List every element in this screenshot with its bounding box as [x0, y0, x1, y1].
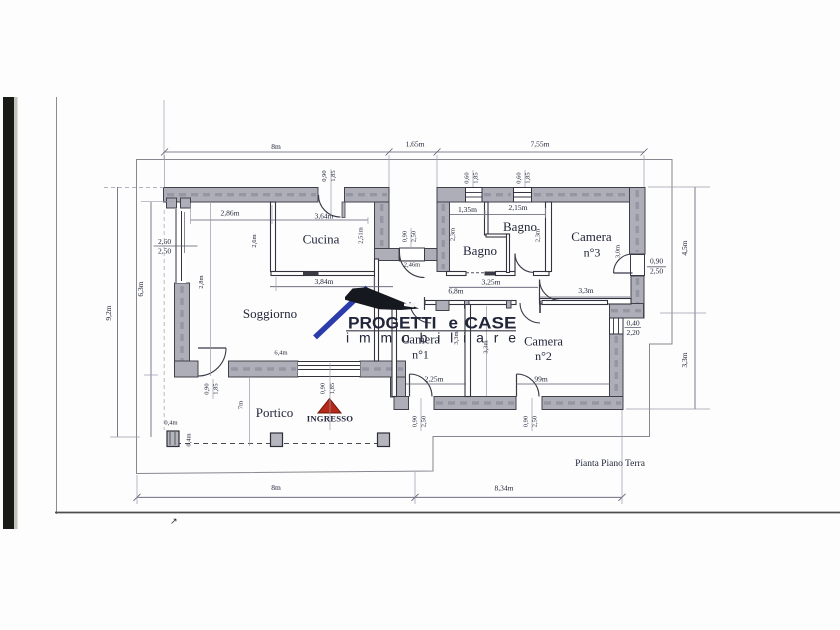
svg-text:INGRESSO: INGRESSO	[307, 414, 354, 424]
svg-text:1,85: 1,85	[525, 172, 532, 183]
svg-text:Camera: Camera	[524, 335, 563, 349]
svg-text:2,50: 2,50	[532, 416, 539, 427]
svg-text:0,90: 0,90	[402, 231, 409, 242]
svg-text:0,90: 0,90	[204, 383, 211, 394]
svg-text:2,86m: 2,86m	[221, 209, 240, 218]
svg-text:9,2m: 9,2m	[104, 305, 113, 320]
svg-text:6,4m: 6,4m	[274, 350, 287, 357]
svg-text:2,15m: 2,15m	[509, 203, 528, 212]
svg-text:8m: 8m	[271, 142, 281, 151]
svg-text:3,3m: 3,3m	[453, 331, 460, 344]
svg-text:n°3: n°3	[584, 246, 601, 260]
svg-text:4,5m: 4,5m	[680, 240, 689, 255]
svg-text:3,84m: 3,84m	[315, 277, 334, 286]
svg-text:1,85: 1,85	[213, 383, 220, 394]
svg-text:7m: 7m	[238, 401, 245, 409]
svg-text:0,90: 0,90	[523, 416, 530, 427]
svg-text:PROGETTI: PROGETTI	[348, 314, 437, 333]
svg-text:Camera: Camera	[571, 229, 612, 244]
svg-text:2,51m: 2,51m	[358, 227, 365, 243]
svg-text:2,6m: 2,6m	[251, 234, 258, 247]
svg-text:3,3m: 3,3m	[578, 286, 593, 295]
svg-text:6,3m: 6,3m	[136, 281, 145, 296]
svg-text:2,50: 2,50	[421, 416, 428, 427]
svg-text:0,90: 0,90	[650, 257, 663, 266]
svg-text:Cucina: Cucina	[303, 232, 340, 247]
svg-text:2,3m: 2,3m	[450, 228, 457, 241]
svg-text:2,46m: 2,46m	[404, 262, 420, 269]
svg-text:1,65m: 1,65m	[406, 140, 425, 149]
svg-text:8m: 8m	[271, 483, 281, 492]
svg-text:2,50: 2,50	[650, 267, 663, 276]
svg-text:CASE: CASE	[465, 314, 517, 333]
svg-text:2,50: 2,50	[411, 231, 418, 242]
svg-text:0,60: 0,60	[516, 172, 523, 183]
svg-text:1,85: 1,85	[330, 170, 337, 181]
svg-text:3,0m: 3,0m	[615, 245, 622, 258]
svg-text:Soggiorno: Soggiorno	[243, 306, 297, 321]
svg-text:0,90: 0,90	[320, 383, 327, 394]
svg-text:2,25m: 2,25m	[425, 375, 444, 384]
svg-text:0,90: 0,90	[321, 170, 328, 181]
svg-text:3,25m: 3,25m	[482, 278, 501, 287]
svg-text:n°2: n°2	[535, 349, 552, 363]
svg-text:Pianta Piano Terra: Pianta Piano Terra	[575, 459, 646, 469]
svg-text:0,4m: 0,4m	[164, 420, 177, 427]
svg-text:Bagno: Bagno	[463, 243, 497, 258]
svg-text:2,8m: 2,8m	[198, 275, 205, 288]
svg-text:7,55m: 7,55m	[531, 140, 550, 149]
svg-text:99m: 99m	[534, 375, 548, 384]
svg-text:0,90: 0,90	[412, 416, 419, 427]
svg-text:e: e	[449, 314, 458, 333]
svg-text:Bagno: Bagno	[503, 219, 537, 234]
svg-text:8,34m: 8,34m	[495, 484, 514, 493]
svg-text:2,20: 2,20	[626, 328, 639, 337]
svg-text:6,8m: 6,8m	[448, 287, 463, 296]
svg-text:3,3m: 3,3m	[680, 352, 689, 367]
svg-text:0,4m: 0,4m	[186, 433, 193, 446]
svg-text:n°1: n°1	[412, 348, 429, 362]
svg-text:1,85: 1,85	[329, 383, 336, 394]
svg-text:1,35m: 1,35m	[458, 205, 477, 214]
svg-text:0,60: 0,60	[464, 172, 471, 183]
svg-text:0,40: 0,40	[626, 319, 639, 328]
svg-text:↗: ↗	[170, 516, 178, 526]
svg-text:Portico: Portico	[256, 405, 294, 420]
svg-text:1,85: 1,85	[473, 172, 480, 183]
